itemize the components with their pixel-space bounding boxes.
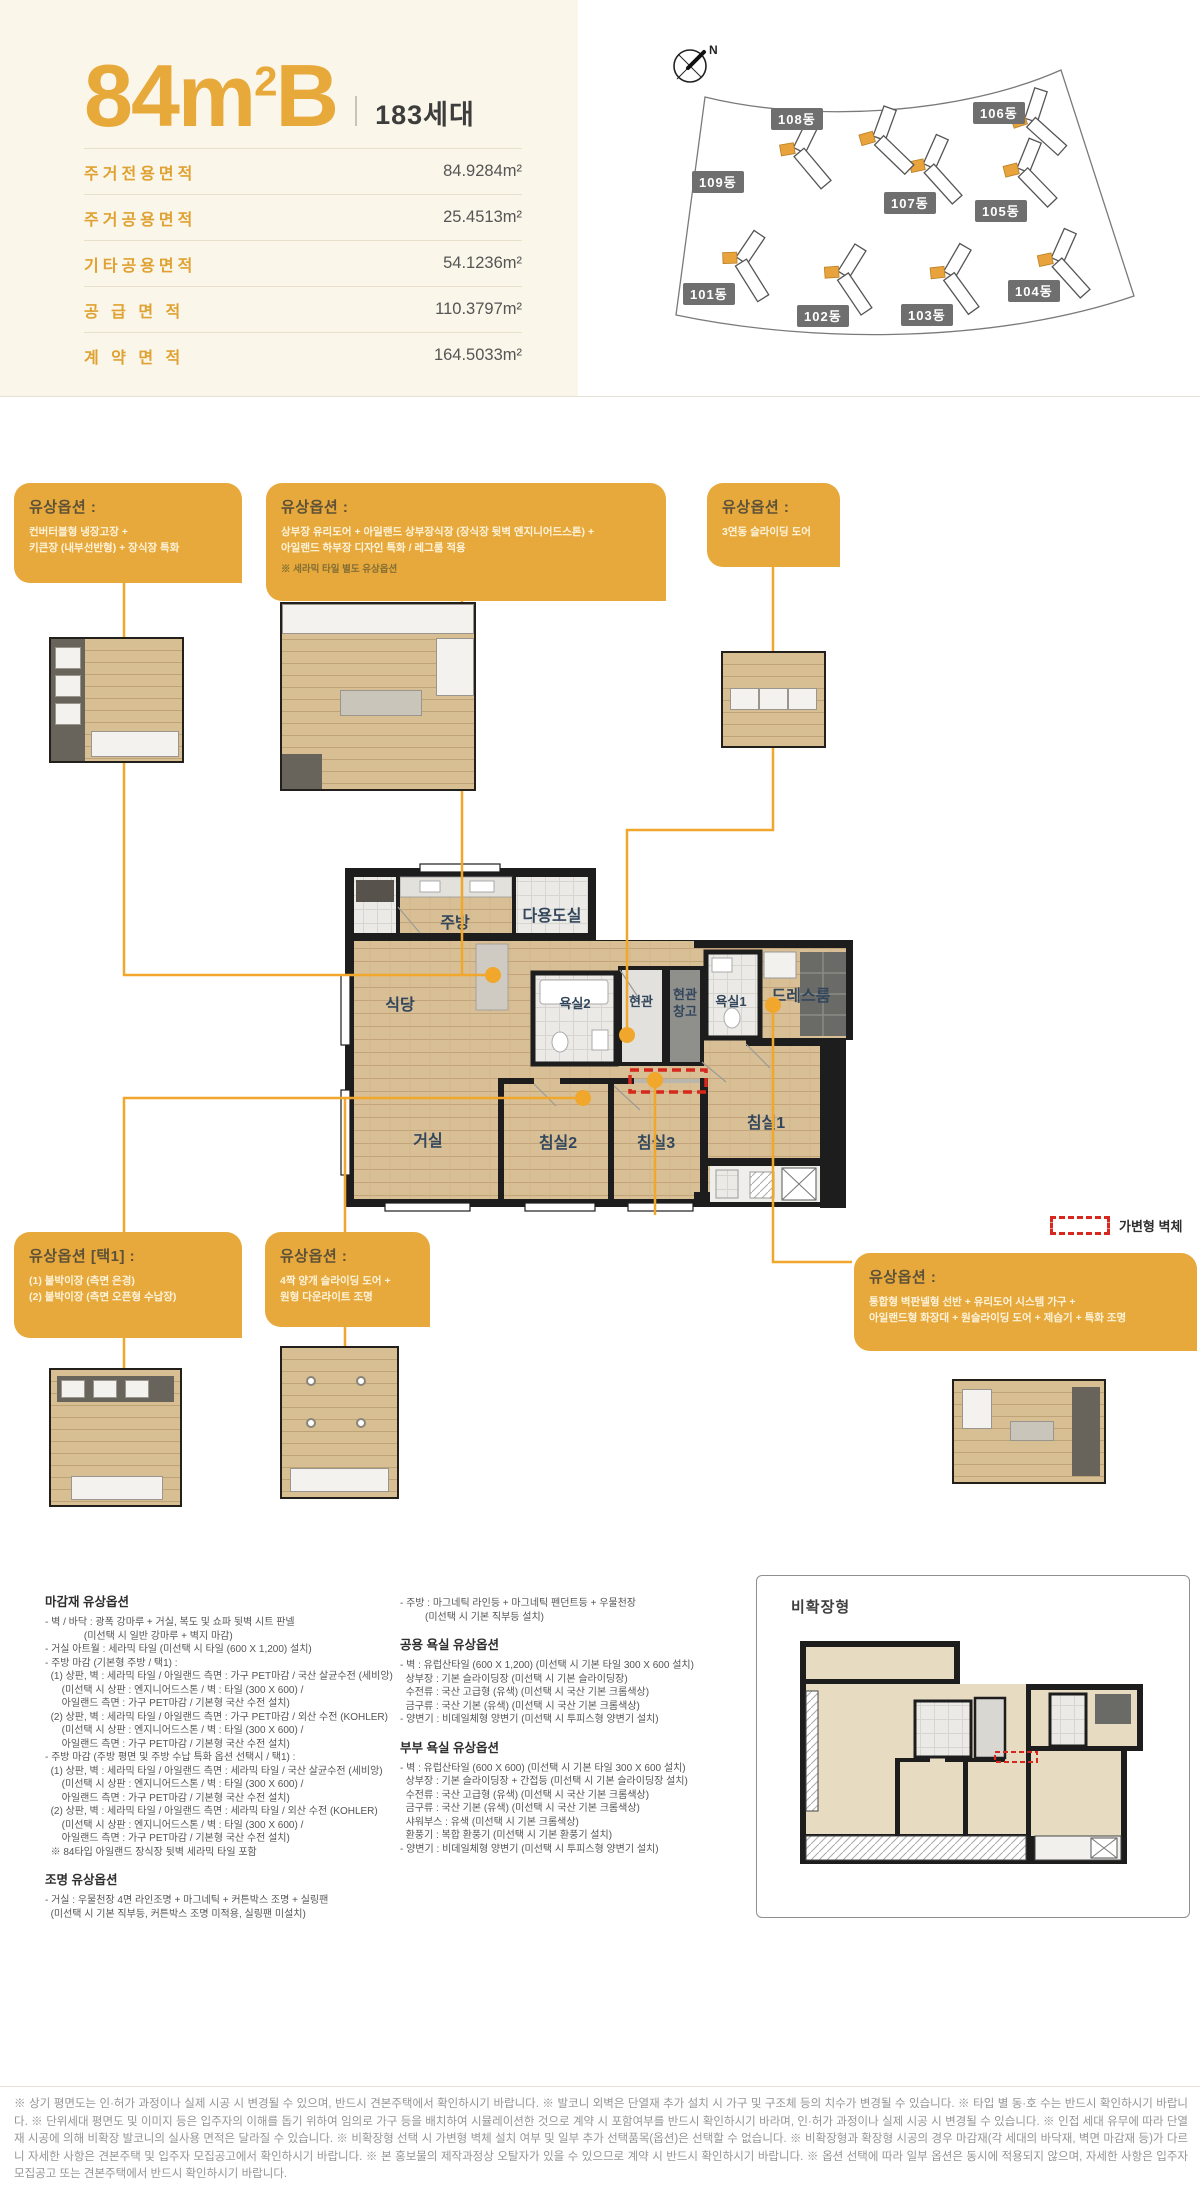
common-bath-line: - 벽 : 유럽산타일 (600 X 1,200) (미선택 시 기본 타일 3… <box>400 1659 750 1673</box>
footer-disclaimer: ※ 상기 평면도는 인·허가 과정이나 실제 시공 시 변경될 수 있으며, 반… <box>14 2096 1188 2184</box>
badge-building-101: 101동 <box>683 283 735 305</box>
option-box-dressroom: 유상옵션 : 통합형 벽판넬형 선반 + 유리도어 시스템 가구 +아일랜드형 … <box>854 1253 1197 1351</box>
finish-option-line: - 거실 아트월 : 세라믹 타일 (미선택 시 타일 (600 X 1,200… <box>45 1643 395 1657</box>
room-label-dining: 식당 <box>385 996 415 1014</box>
common-bath-line: 상부장 : 기본 슬라이딩장 (미선택 시 기본 슬라이딩장) <box>400 1673 750 1687</box>
bath-options-section: - 주방 : 마그네틱 라인등 + 마그네틱 펜던트등 + 우물천장 (미선택 … <box>400 1597 750 1856</box>
non-expanded-plan <box>795 1636 1155 1886</box>
mini-plan-dressroom <box>952 1379 1106 1484</box>
option-box-line: (1) 붙박이장 (측면 은경) <box>29 1273 227 1289</box>
finish-option-line: (1) 상판, 벽 : 세라믹 타일 / 아일랜드 측면 : 세라믹 타일 / … <box>45 1765 395 1779</box>
badge-building-106: 106동 <box>973 102 1025 124</box>
room-label-living: 거실 <box>413 1132 442 1150</box>
room-label-bed3: 침실3 <box>637 1133 675 1152</box>
room-label-utility: 다용도실 <box>523 907 582 925</box>
option-box-kitchen-storage: 유상옵션 : 컨버터블형 냉장고장 +키큰장 (내부선반형) + 장식장 특화 <box>14 483 242 583</box>
master-bath-line: 수전류 : 국산 고급형 (유색) (미선택 시 국산 기본 크롬색상) <box>400 1789 750 1803</box>
area-value: 164.5033m² <box>434 346 522 365</box>
room-label-dress: 드레스룸 <box>772 987 831 1005</box>
non-expanded-plan-box: 비확장형 <box>756 1575 1190 1918</box>
area-label: 주거전용면적 <box>84 160 196 184</box>
badge-building-108: 108동 <box>771 108 823 130</box>
title-separator <box>355 96 357 126</box>
mini-plan-kitchen-storage <box>49 637 184 763</box>
svg-text:N: N <box>709 43 718 57</box>
option-box-line: 상부장 유리도어 + 아일랜드 상부장식장 (장식장 뒷벽 엔지니어드스톤) + <box>281 524 651 540</box>
room-label-entry-storage-1: 현관 <box>673 987 697 1002</box>
master-bath-line: 환풍기 : 복합 환풍기 (미선택 시 기본 환풍기 설치) <box>400 1829 750 1843</box>
finish-option-line: (미선택 시 상판 : 엔지니어드스톤 / 벽 : 타일 (300 X 600)… <box>45 1724 395 1738</box>
option-box-line: 통합형 벽판넬형 선반 + 유리도어 시스템 가구 + <box>869 1294 1182 1310</box>
option-box-built-in-closet: 유상옵션 [택1] : (1) 붙박이장 (측면 은경)(2) 붙박이장 (측면… <box>14 1232 242 1338</box>
area-label: 주거공용면적 <box>84 206 196 230</box>
header-divider <box>0 396 1200 397</box>
area-value: 110.3797m² <box>435 300 522 319</box>
finish-option-line: - 주방 마감 (기본형 주방 / 택1) : <box>45 1657 395 1671</box>
master-bath-title: 부부 욕실 유상옵션 <box>400 1737 750 1756</box>
option-box-line: 아일랜드 하부장 디자인 특화 / 레그룸 적용 <box>281 540 651 556</box>
option-box-title: 유상옵션 : <box>29 496 227 517</box>
room-label-kitchen: 주방 <box>440 914 470 932</box>
area-label: 계 약 면 적 <box>84 344 184 368</box>
option-box-line: 아일랜드형 화장대 + 원슬라이딩 도어 + 제습기 + 특화 조명 <box>869 1310 1182 1326</box>
badge-building-105: 105동 <box>975 200 1027 222</box>
finish-option-line: ※ 84타입 아일랜드 장식장 뒷벽 세라믹 타일 포함 <box>45 1846 395 1860</box>
area-table-row: 계 약 면 적 164.5033m² <box>84 332 522 378</box>
master-bath-line: 금구류 : 국산 기본 (유색) (미선택 시 국산 기본 크롬색상) <box>400 1802 750 1816</box>
option-box-line: 4짝 양개 슬라이딩 도어 + <box>280 1273 415 1289</box>
common-bath-line: - 양변기 : 비데일체형 양변기 (미선택 시 투피스형 양변기 설치) <box>400 1713 750 1727</box>
lighting-options-title: 조명 유상옵션 <box>45 1869 395 1888</box>
room-label-bath2: 욕실2 <box>559 996 590 1011</box>
finish-option-line: (1) 상판, 벽 : 세라믹 타일 / 아일랜드 측면 : 가구 PET마감 … <box>45 1670 395 1684</box>
option-box-line: (2) 붙박이장 (측면 오픈형 수납장) <box>29 1289 227 1305</box>
finish-option-line: 아일랜드 측면 : 가구 PET마감 / 기본형 국산 수전 설치) <box>45 1832 395 1846</box>
option-box-title: 유상옵션 : <box>869 1266 1182 1287</box>
room-label-bed1: 침실1 <box>747 1113 785 1132</box>
master-bath-line: - 양변기 : 비데일체형 양변기 (미선택 시 투피스형 양변기 설치) <box>400 1843 750 1857</box>
option-box-four-panel-door: 유상옵션 : 4짝 양개 슬라이딩 도어 +원형 다운라이트 조명 <box>265 1232 430 1327</box>
variable-wall-legend: 가변형 벽체 <box>1050 1216 1182 1235</box>
finish-option-line: (미선택 시 상판 : 엔지니어드스톤 / 벽 : 타일 (300 X 600)… <box>45 1778 395 1792</box>
option-box-note: ※ 세라믹 타일 별도 유상옵션 <box>281 561 651 575</box>
finish-option-line: 아일랜드 측면 : 가구 PET마감 / 기본형 국산 수전 설치) <box>45 1738 395 1752</box>
finish-option-line: (미선택 시 상판 : 엔지니어드스톤 / 벽 : 타일 (300 X 600)… <box>45 1819 395 1833</box>
option-box-line: 원형 다운라이트 조명 <box>280 1289 415 1305</box>
area-label: 기타공용면적 <box>84 252 196 276</box>
mini-plan-kitchen-island <box>280 602 476 791</box>
finish-option-line: 아일랜드 측면 : 가구 PET마감 / 기본형 국산 수전 설치) <box>45 1792 395 1806</box>
mini-plan-closet <box>49 1368 182 1507</box>
area-table-row: 주거전용면적 84.9284m² <box>84 148 522 194</box>
area-table-row: 기타공용면적 54.1236m² <box>84 240 522 286</box>
area-value: 25.4513m² <box>443 208 522 227</box>
building-108 <box>855 103 915 180</box>
area-value: 54.1236m² <box>443 254 522 273</box>
footer-divider <box>0 2086 1200 2087</box>
non-expanded-title: 비확장형 <box>791 1596 850 1617</box>
room-label-entry: 현관 <box>629 994 653 1009</box>
lighting-kitchen-line: (미선택 시 기본 직부등 설치) <box>400 1611 750 1625</box>
lighting-kitchen-line: - 주방 : 마그네틱 라인등 + 마그네틱 펜던트등 + 우물천장 <box>400 1597 750 1611</box>
unit-type-text: 84m2B <box>84 52 337 140</box>
common-bath-title: 공용 욕실 유상옵션 <box>400 1634 750 1653</box>
finish-options-section: 마감재 유상옵션 - 벽 / 바닥 : 광폭 강마루 + 거실, 복도 및 쇼파… <box>45 1591 395 1921</box>
area-label: 공 급 면 적 <box>84 298 184 322</box>
finish-option-line: 아일랜드 측면 : 가구 PET마감 / 기본형 국산 수전 설치) <box>45 1697 395 1711</box>
option-box-title: 유상옵션 : <box>280 1245 415 1266</box>
room-label-bath1: 욕실1 <box>715 994 746 1009</box>
badge-building-103: 103동 <box>901 304 953 326</box>
finish-options-title: 마감재 유상옵션 <box>45 1591 395 1610</box>
bathroom2 <box>533 973 616 1064</box>
common-bath-line: 금구류 : 국산 기본 (유색) (미선택 시 국산 기본 크롬색상) <box>400 1700 750 1714</box>
brochure-page: 84m2B 183세대 주거전용면적 84.9284m² 주거공용면적 25.4… <box>0 0 1200 2193</box>
finish-option-line: (미선택 시 상판 : 엔지니어드스톤 / 벽 : 타일 (300 X 600)… <box>45 1684 395 1698</box>
option-box-title: 유상옵션 [택1] : <box>29 1245 227 1266</box>
finish-option-line: - 벽 / 바닥 : 광폭 강마루 + 거실, 복도 및 쇼파 뒷벽 시트 판넬 <box>45 1616 395 1630</box>
option-box-line: 키큰장 (내부선반형) + 장식장 특화 <box>29 540 227 556</box>
finish-option-line: (미선택 시 일반 강마루 + 벽지 마감) <box>45 1630 395 1644</box>
lighting-option-line: - 거실 : 우물천장 4면 라인조명 + 마그네틱 + 커튼박스 조명 + 실… <box>45 1894 395 1908</box>
area-table-row: 공 급 면 적 110.3797m² <box>84 286 522 332</box>
option-box-sliding-door: 유상옵션 : 3연동 슬라이딩 도어 <box>707 483 840 567</box>
master-bath-line: 샤워부스 : 유색 (미선택 시 기본 크롬색상) <box>400 1816 750 1830</box>
finish-option-line: - 주방 마감 (주방 평면 및 주방 수납 특화 옵션 선택시 / 택1) : <box>45 1751 395 1765</box>
room-label-entry-storage-2: 창고 <box>673 1004 697 1019</box>
area-table: 주거전용면적 84.9284m² 주거공용면적 25.4513m² 기타공용면적… <box>84 148 522 378</box>
variable-wall-swatch <box>1050 1216 1110 1235</box>
area-table-row: 주거공용면적 25.4513m² <box>84 194 522 240</box>
room-label-bed2: 침실2 <box>539 1133 577 1152</box>
option-box-line: 컨버터블형 냉장고장 + <box>29 524 227 540</box>
common-bath-line: 수전류 : 국산 고급형 (유색) (미선택 시 국산 기본 크롬색상) <box>400 1686 750 1700</box>
badge-building-107: 107동 <box>884 192 936 214</box>
option-box-title: 유상옵션 : <box>281 496 651 517</box>
badge-building-102: 102동 <box>797 305 849 327</box>
variable-wall-label: 가변형 벽체 <box>1119 1216 1182 1235</box>
households-count: 183세대 <box>375 93 475 132</box>
finish-option-line: (2) 상판, 벽 : 세라믹 타일 / 아일랜드 측면 : 세라믹 타일 / … <box>45 1805 395 1819</box>
area-value: 84.9284m² <box>443 162 522 181</box>
floor-plan: 주방 다용도실 식당 욕실2 현관 현관 창고 욕실1 드레스룸 거실 침실2 … <box>340 860 880 1212</box>
mini-plan-downlight-room <box>280 1346 399 1499</box>
lighting-option-line: (미선택 시 기본 직부등, 커튼박스 조명 미적용, 실링팬 미설치) <box>45 1908 395 1922</box>
option-box-line: 3연동 슬라이딩 도어 <box>722 524 825 540</box>
badge-building-109: 109동 <box>692 171 744 193</box>
rear-balcony <box>710 1166 820 1202</box>
master-bath-line: - 벽 : 유럽산타일 (600 X 600) (미선택 시 기본 타일 300… <box>400 1762 750 1776</box>
unit-type-title: 84m2B 183세대 <box>84 52 475 140</box>
option-box-title: 유상옵션 : <box>722 496 825 517</box>
option-box-kitchen-island: 유상옵션 : 상부장 유리도어 + 아일랜드 상부장식장 (장식장 뒷벽 엔지니… <box>266 483 666 601</box>
compass-icon: N <box>674 43 718 82</box>
entry-hall <box>620 968 664 1064</box>
master-bath-line: 상부장 : 기본 슬라이딩장 + 간접등 (미선택 시 기본 슬라이딩장 설치) <box>400 1775 750 1789</box>
mini-plan-sliding-door <box>721 651 826 748</box>
finish-option-line: (2) 상판, 벽 : 세라믹 타일 / 아일랜드 측면 : 가구 PET마감 … <box>45 1711 395 1725</box>
badge-building-104: 104동 <box>1008 280 1060 302</box>
